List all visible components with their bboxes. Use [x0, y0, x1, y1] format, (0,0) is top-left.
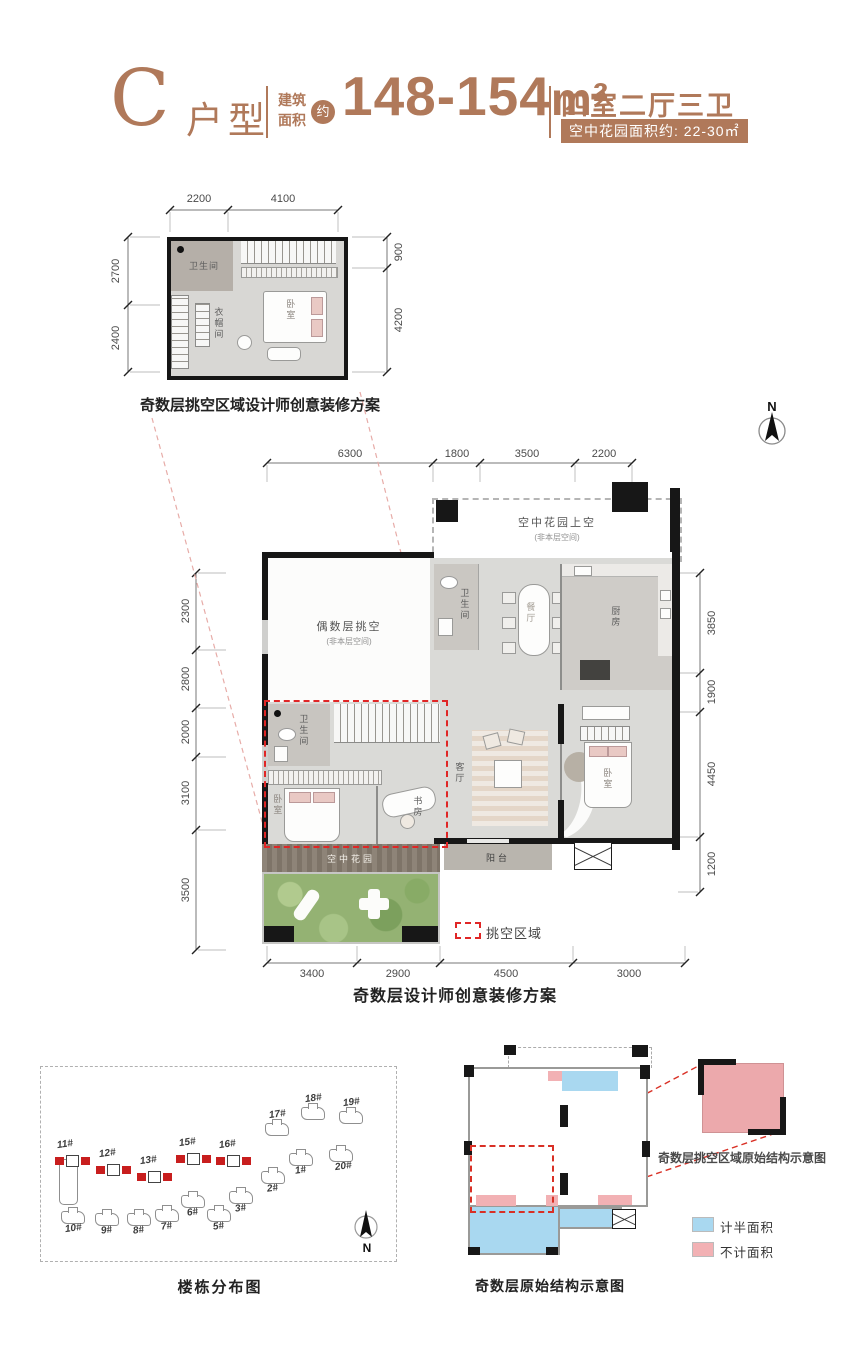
dim: 2900 — [368, 968, 428, 980]
building-highlighted — [216, 1155, 251, 1167]
dim: 2200 — [169, 193, 229, 205]
column — [560, 1105, 568, 1127]
building-core — [66, 1155, 79, 1167]
dim: 4100 — [253, 193, 313, 205]
dim: 2700 — [110, 241, 122, 301]
detail-wall — [698, 1059, 736, 1065]
dim: 3000 — [599, 968, 659, 980]
double-height-room: 偶数层挑空 (非本层空间) — [268, 558, 430, 702]
dim: 1200 — [706, 834, 718, 894]
bedroom-right-label: 卧室 — [602, 768, 612, 790]
upper-cloakroom-label: 衣帽间 — [213, 307, 223, 340]
dim: 4500 — [476, 968, 536, 980]
garden-area-badge: 空中花园面积约: 22-30㎡ — [561, 119, 748, 143]
building-label: 3# — [234, 1202, 247, 1214]
living-label: 客厅 — [454, 762, 464, 784]
double-height-note: (非本层空间) — [268, 636, 430, 647]
structure-detail-label: 奇数层挑空区域原始结构示意图 — [658, 1149, 838, 1166]
building-label: 2# — [266, 1182, 279, 1194]
building-label: 18# — [304, 1092, 322, 1105]
building-label: 7# — [160, 1220, 173, 1232]
dim: 2300 — [180, 581, 192, 641]
column — [436, 500, 458, 522]
upper-closet-column-2 — [195, 303, 210, 347]
area-label: 建筑 面积 — [278, 91, 306, 130]
column — [504, 1045, 516, 1055]
structure-plan-caption: 奇数层原始结构示意图 — [450, 1276, 650, 1296]
armchair — [507, 728, 526, 745]
dim: 2200 — [574, 448, 634, 460]
building-core — [148, 1171, 161, 1183]
void-region-outline — [264, 700, 448, 848]
dim: 1900 — [706, 662, 718, 722]
unit-type-letter: C — [110, 60, 170, 138]
dim: 2800 — [180, 649, 192, 709]
stove-icon — [660, 590, 671, 601]
upper-plan-caption: 奇数层挑空区域设计师创意装修方案 — [110, 394, 410, 415]
dim: 6300 — [320, 448, 380, 460]
site-plan: 11# 12# 13# 15# 16# 10# 9# 8# 7# 6# 5# 3… — [40, 1066, 397, 1262]
dim: 3500 — [497, 448, 557, 460]
balcony-label: 阳台 — [444, 851, 552, 864]
excluded-area — [598, 1195, 632, 1205]
half-area — [562, 1071, 618, 1091]
building-label: 1# — [294, 1164, 307, 1176]
building-highlighted — [137, 1171, 172, 1183]
legend-excluded-swatch — [692, 1242, 714, 1257]
building-core — [107, 1164, 120, 1176]
building-label: 15# — [178, 1136, 196, 1149]
excluded-area — [548, 1071, 562, 1081]
building-wing — [242, 1157, 251, 1165]
void-legend-label: 挑空区域 — [486, 923, 542, 942]
upper-shelf — [241, 267, 338, 278]
site-plan-caption: 楼栋分布图 — [120, 1276, 320, 1297]
building-label: 12# — [98, 1147, 116, 1160]
area-label-top: 建筑 — [278, 91, 306, 111]
pillow — [311, 297, 323, 315]
structure-outline-top — [508, 1047, 652, 1068]
bench — [267, 347, 301, 361]
building-highlighted — [55, 1155, 90, 1167]
upper-plan: 卫生间 衣帽间 卧室 — [167, 237, 348, 380]
dim: 4450 — [706, 744, 718, 804]
ac-platform — [574, 842, 612, 870]
column — [546, 1247, 558, 1255]
building-core — [187, 1153, 200, 1165]
chair — [502, 617, 516, 629]
header-divider-1 — [266, 86, 268, 138]
building-wing — [96, 1166, 105, 1174]
sink-icon — [574, 566, 592, 576]
toilet-icon — [177, 246, 184, 253]
wall-right — [672, 552, 680, 850]
building-label: 11# — [56, 1138, 73, 1151]
sky-garden-above-note: (非本层空间) — [434, 532, 680, 543]
wall-stub — [670, 488, 680, 552]
dim: 3500 — [180, 860, 192, 920]
building-label: 6# — [186, 1206, 199, 1218]
building-label: 19# — [342, 1096, 360, 1109]
building-label: 13# — [139, 1154, 157, 1167]
dim: 3850 — [706, 593, 718, 653]
building-label: 10# — [64, 1222, 82, 1235]
building-wing — [216, 1157, 225, 1165]
building-label: 9# — [100, 1224, 113, 1236]
kitchen-label: 厨房 — [610, 606, 620, 628]
column — [612, 482, 648, 512]
layout-text: 四室二厅三卫 — [561, 84, 735, 123]
building-label: 5# — [212, 1220, 225, 1232]
building — [339, 1111, 363, 1124]
main-plan-caption: 奇数层设计师创意装修方案 — [305, 982, 605, 1006]
column — [402, 926, 438, 942]
building-label: 16# — [218, 1138, 236, 1151]
building-highlighted — [96, 1164, 131, 1176]
garden-table-icon — [368, 889, 380, 919]
dim: 2000 — [180, 702, 192, 762]
dim: 3400 — [282, 968, 342, 980]
dim: 3100 — [180, 763, 192, 823]
header: C 户型 建筑 面积 约 148-154m² 四室二厅三卫 空中花园面积约: 2… — [0, 0, 850, 160]
header-divider-2 — [549, 86, 551, 138]
pillow — [608, 746, 627, 757]
wardrobe — [580, 726, 630, 741]
column — [640, 1065, 650, 1079]
legend-excluded-label: 不计面积 — [720, 1242, 774, 1261]
double-height-label: 偶数层挑空 — [268, 618, 430, 634]
building-wing — [137, 1173, 146, 1181]
building — [301, 1107, 325, 1120]
column — [464, 1065, 474, 1077]
north-label: N — [766, 399, 778, 414]
dim: 4200 — [393, 290, 405, 350]
building-label: 8# — [132, 1224, 145, 1236]
legend-half-swatch — [692, 1217, 714, 1232]
structure-void-outline — [470, 1145, 554, 1213]
dim: 1800 — [427, 448, 487, 460]
legend-half-label: 计半面积 — [720, 1217, 774, 1236]
dining-label: 餐厅 — [525, 602, 535, 624]
sink-icon — [438, 618, 453, 636]
wall-segment — [558, 704, 564, 744]
toilet-icon — [440, 576, 458, 589]
main-plan: 空中花园上空 (非本层空间) 偶数层挑空 (非本层空间) 卫生间 餐厅 厨房 客… — [262, 490, 690, 955]
building-wing — [163, 1173, 172, 1181]
window — [467, 839, 509, 843]
sky-garden-above-label: 空中花园上空 — [434, 514, 680, 530]
building-wing — [81, 1157, 90, 1165]
unit-type-suffix: 户型 — [186, 90, 270, 144]
building — [265, 1123, 289, 1136]
bathroom-upper-label: 卫生间 — [459, 588, 469, 621]
dresser — [582, 706, 630, 720]
area-number: 148-154 — [342, 65, 551, 127]
column — [642, 1141, 650, 1157]
column — [560, 1173, 568, 1195]
building-wing — [122, 1166, 131, 1174]
approx-badge: 约 — [311, 100, 335, 124]
wall-segment — [558, 800, 564, 840]
chair — [502, 592, 516, 604]
building-wing — [176, 1155, 185, 1163]
area-label-bottom: 面积 — [278, 111, 306, 131]
building-label: 20# — [334, 1160, 352, 1173]
dim: 2400 — [110, 308, 122, 368]
sky-garden-label: 空中花园 — [262, 852, 440, 865]
pillow — [311, 319, 323, 337]
upper-stairs — [241, 241, 336, 264]
building-wing — [55, 1157, 64, 1165]
kitchen-wall — [560, 564, 562, 690]
structure-plan: 奇数层挑空区域原始结构示意图 计半面积 不计面积 — [460, 1045, 840, 1285]
building-wing — [202, 1155, 211, 1163]
column — [264, 926, 294, 942]
column — [468, 1247, 480, 1255]
ac-platform — [612, 1209, 636, 1229]
building-core — [227, 1155, 240, 1167]
stove-icon — [660, 608, 671, 619]
chair — [502, 642, 516, 654]
upper-closet-column — [171, 295, 189, 369]
column — [632, 1045, 648, 1057]
detail-wall — [748, 1129, 786, 1135]
site-north-label: N — [361, 1241, 373, 1255]
void-legend-swatch — [455, 922, 481, 939]
dim: 900 — [393, 222, 405, 282]
bathroom-upper — [434, 564, 479, 650]
floorplan-page: { "header": { "type_letter": "C", "type_… — [0, 0, 850, 1366]
stool-icon — [237, 335, 252, 350]
fridge-icon — [580, 660, 610, 680]
upper-bathroom-label: 卫生间 — [189, 261, 219, 271]
void-detail-box — [702, 1063, 784, 1133]
building-label: 17# — [268, 1108, 286, 1121]
building-highlighted — [176, 1153, 211, 1165]
pillow — [589, 746, 608, 757]
upper-bedroom-label: 卧室 — [285, 299, 295, 321]
